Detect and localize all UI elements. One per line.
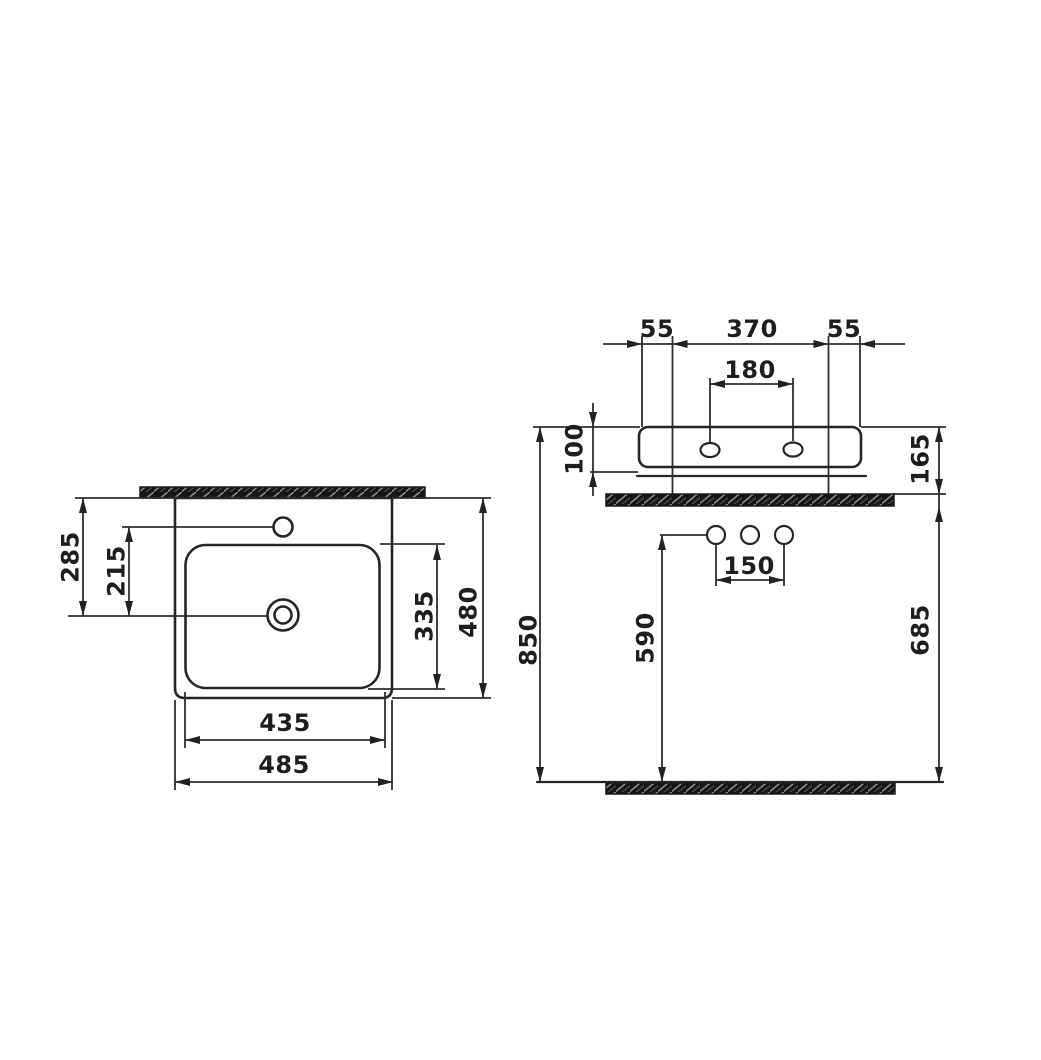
basin-outer-rim: [175, 498, 392, 698]
dim-basin-depth: 335: [410, 545, 441, 689]
dim-body-height: 100: [560, 403, 597, 496]
supply-hole-left: [707, 526, 725, 544]
dim-label-435: 435: [259, 709, 311, 737]
dim-label-685: 685: [906, 604, 934, 656]
dim-rim-to-counter: 165: [906, 427, 943, 494]
drain-hole-inner: [275, 607, 292, 624]
dim-fixing-hole-spacing: 180: [710, 356, 793, 442]
front-view: 55 370 55 180: [514, 315, 946, 794]
dim-floor-to-counter: 685: [906, 494, 943, 782]
dim-label-165: 165: [906, 433, 934, 485]
dim-basin-width: 435: [185, 709, 385, 744]
technical-drawing: 285 215 335 480 435: [0, 0, 1041, 1060]
dim-label-100: 100: [560, 423, 588, 475]
dim-label-480: 480: [454, 586, 482, 638]
dim-label-55-left: 55: [640, 315, 674, 343]
supply-hole-right: [775, 526, 793, 544]
dim-label-150: 150: [723, 552, 775, 580]
supply-hole-center: [741, 526, 759, 544]
dim-label-215: 215: [102, 545, 130, 597]
dim-label-850: 850: [514, 614, 542, 666]
dim-faucet-to-drain: 215: [102, 527, 133, 616]
drain-hole-outer: [268, 600, 299, 631]
fixing-hole-right: [784, 443, 803, 457]
floor-hatch-strip: [606, 783, 895, 794]
dim-label-370: 370: [726, 315, 778, 343]
dim-overall-width: 485: [175, 751, 393, 786]
dim-floor-to-rim: 850: [514, 427, 544, 782]
dim-label-285: 285: [56, 531, 84, 583]
fixing-hole-left: [701, 443, 720, 457]
counter-hatch-strip: [606, 494, 894, 506]
faucet-hole: [274, 518, 293, 537]
dim-label-335: 335: [410, 590, 438, 642]
dim-supply-hole-spacing: 150: [716, 552, 784, 584]
dim-label-180: 180: [724, 356, 776, 384]
top-view: 285 215 335 480 435: [56, 487, 491, 790]
dim-label-55-right: 55: [827, 315, 861, 343]
wall-hatch-strip: [140, 487, 425, 498]
dim-label-485: 485: [258, 751, 310, 779]
dim-front-edge-to-drain: 285: [56, 498, 87, 616]
dim-overall-depth: 480: [454, 498, 487, 698]
drawing-canvas: 285 215 335 480 435: [0, 0, 1041, 1060]
dim-floor-to-outlets: 590: [631, 535, 666, 782]
dim-label-590: 590: [631, 612, 659, 664]
